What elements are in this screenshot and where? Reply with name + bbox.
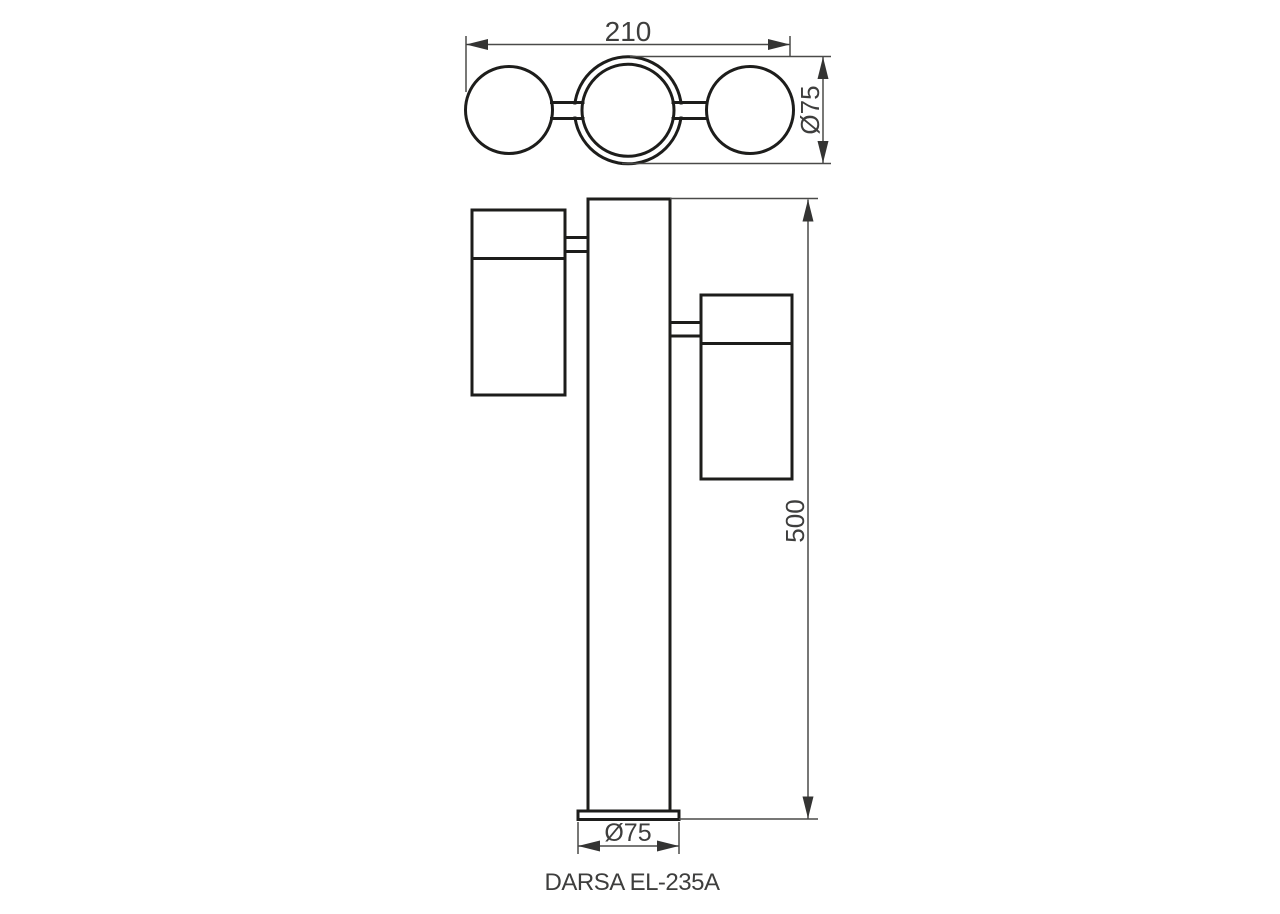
darsa-el-235a-technical-drawing: 210 Ø75 500 Ø75 <box>0 0 1280 914</box>
pole <box>588 199 670 811</box>
top-view-left-connector-fill <box>556 105 580 117</box>
arrowhead-up-icon <box>803 200 814 222</box>
base-diameter-value: Ø75 <box>604 819 651 847</box>
technical-drawing-page: 210 Ø75 500 Ø75 <box>0 0 1280 914</box>
top-view-right-head-circle <box>707 67 794 154</box>
arrowhead-left-icon <box>578 841 600 852</box>
dimension-pole-height: 500 <box>670 199 818 820</box>
arrowhead-left-icon <box>466 39 488 50</box>
arrowhead-right-icon <box>768 39 790 50</box>
side-view <box>472 199 792 820</box>
top-view-left-head-circle <box>466 67 553 154</box>
top-width-value: 210 <box>605 16 652 47</box>
top-view-right-connector-fill <box>677 105 703 117</box>
right-lamp-head <box>701 295 792 479</box>
arrowhead-down-icon <box>803 797 814 819</box>
arrowhead-right-icon <box>657 841 679 852</box>
arrowhead-up-icon <box>818 57 829 79</box>
top-view <box>466 57 794 164</box>
arrowhead-down-icon <box>818 141 829 163</box>
pole-height-value: 500 <box>780 499 810 542</box>
top-view-center-pole-inner-circle <box>582 64 674 156</box>
left-lamp-head <box>472 210 565 395</box>
head-diameter-value: Ø75 <box>795 85 825 134</box>
product-label: DARSA EL-235A <box>545 869 720 896</box>
dimension-base-diameter: Ø75 <box>578 819 679 854</box>
